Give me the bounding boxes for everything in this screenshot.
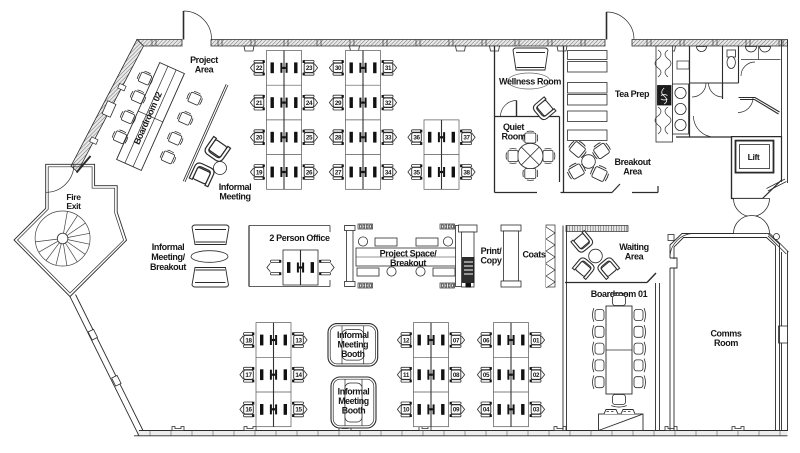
svg-text:03: 03 xyxy=(533,407,540,414)
svg-text:20: 20 xyxy=(256,135,263,142)
svg-text:38: 38 xyxy=(463,169,470,176)
svg-text:31: 31 xyxy=(385,65,392,72)
svg-text:11: 11 xyxy=(403,372,410,379)
svg-text:25: 25 xyxy=(306,135,313,142)
svg-text:10: 10 xyxy=(403,407,410,414)
svg-text:36: 36 xyxy=(413,135,420,142)
svg-text:InformalMeeting/Breakout: InformalMeeting/Breakout xyxy=(150,242,186,272)
svg-text:01: 01 xyxy=(533,337,540,344)
svg-text:Tea Prep: Tea Prep xyxy=(615,89,650,99)
svg-text:05: 05 xyxy=(483,372,490,379)
svg-text:27: 27 xyxy=(335,169,342,176)
svg-text:02: 02 xyxy=(533,372,540,379)
svg-text:28: 28 xyxy=(335,135,342,142)
svg-text:InformalMeetingBooth: InformalMeetingBooth xyxy=(338,387,370,416)
svg-text:04: 04 xyxy=(483,407,490,414)
svg-text:15: 15 xyxy=(295,407,302,414)
svg-text:FireExit: FireExit xyxy=(66,192,81,211)
svg-text:34: 34 xyxy=(385,169,392,176)
svg-text:30: 30 xyxy=(335,65,342,72)
svg-text:14: 14 xyxy=(295,372,302,379)
svg-text:InformalMeetingBooth: InformalMeetingBooth xyxy=(337,330,369,359)
svg-text:13: 13 xyxy=(295,337,302,344)
svg-text:Lift: Lift xyxy=(748,152,760,162)
svg-text:06: 06 xyxy=(483,337,490,344)
svg-text:CommsRoom: CommsRoom xyxy=(710,329,741,349)
svg-text:2 Person Office: 2 Person Office xyxy=(269,233,330,243)
svg-text:26: 26 xyxy=(306,169,313,176)
svg-text:12: 12 xyxy=(403,337,410,344)
svg-text:17: 17 xyxy=(245,372,252,379)
svg-text:29: 29 xyxy=(335,100,342,107)
svg-text:InformalMeeting: InformalMeeting xyxy=(219,182,251,202)
svg-text:21: 21 xyxy=(256,100,263,107)
svg-text:19: 19 xyxy=(256,169,263,176)
svg-text:Wellness Room: Wellness Room xyxy=(499,77,561,87)
svg-text:24: 24 xyxy=(306,100,313,107)
svg-text:35: 35 xyxy=(413,169,420,176)
svg-text:Coats: Coats xyxy=(522,250,545,260)
svg-text:16: 16 xyxy=(245,407,252,414)
svg-text:18: 18 xyxy=(245,337,252,344)
svg-text:37: 37 xyxy=(463,135,470,142)
svg-text:23: 23 xyxy=(306,65,313,72)
svg-text:QuietRoom: QuietRoom xyxy=(502,122,526,142)
svg-text:07: 07 xyxy=(453,337,460,344)
svg-text:08: 08 xyxy=(453,372,460,379)
svg-text:Print/Copy: Print/Copy xyxy=(481,246,503,266)
svg-text:32: 32 xyxy=(385,100,392,107)
svg-text:33: 33 xyxy=(385,135,392,142)
svg-text:22: 22 xyxy=(256,65,263,72)
svg-text:09: 09 xyxy=(453,407,460,414)
